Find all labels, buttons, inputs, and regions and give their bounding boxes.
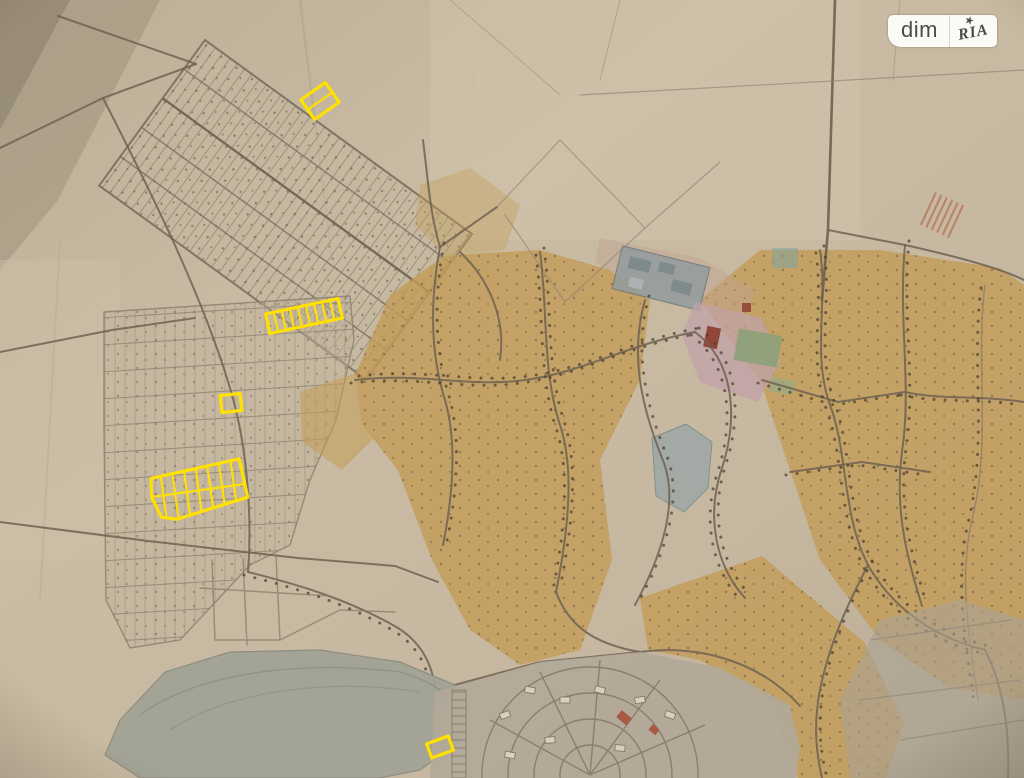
listing-map-photo: dim ★ RIA — [0, 0, 1024, 778]
brand-ria-logo: ★ RIA — [950, 15, 997, 47]
brand-watermark: dim ★ RIA — [888, 15, 997, 47]
brand-dim-label: dim — [888, 15, 949, 47]
photo-vignette — [0, 0, 1024, 778]
map-drawing — [0, 0, 1024, 778]
